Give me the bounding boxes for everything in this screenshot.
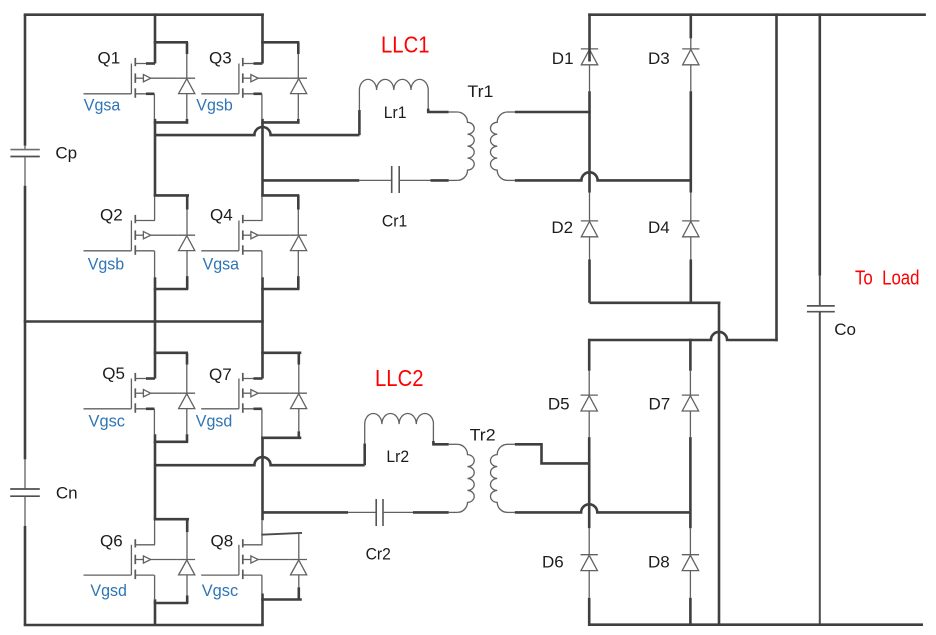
svg-text:Tr1: Tr1 [467, 82, 493, 101]
svg-text:D1: D1 [552, 49, 574, 68]
svg-text:Cr2: Cr2 [366, 545, 391, 564]
svg-text:Vgsb: Vgsb [88, 255, 125, 274]
svg-text:D2: D2 [551, 218, 573, 237]
svg-text:D7: D7 [649, 395, 671, 414]
svg-text:Cn: Cn [56, 484, 78, 503]
svg-text:Vgsc: Vgsc [202, 581, 239, 600]
svg-text:Vgsd: Vgsd [90, 581, 127, 600]
svg-text:To Load: To Load [855, 268, 920, 290]
svg-text:Q3: Q3 [209, 48, 232, 67]
svg-text:D5: D5 [548, 395, 570, 414]
svg-text:Tr2: Tr2 [470, 426, 496, 445]
svg-text:Q6: Q6 [100, 532, 123, 551]
svg-text:LLC1: LLC1 [381, 32, 430, 58]
svg-text:D4: D4 [648, 218, 670, 237]
svg-text:Lr1: Lr1 [384, 103, 407, 122]
svg-text:Q8: Q8 [211, 532, 234, 551]
svg-text:Vgsc: Vgsc [89, 411, 126, 430]
svg-text:Lr2: Lr2 [386, 447, 409, 466]
svg-text:Vgsa: Vgsa [84, 95, 121, 114]
svg-text:Q1: Q1 [98, 48, 121, 67]
svg-text:Vgsb: Vgsb [196, 95, 233, 114]
svg-text:Cr1: Cr1 [382, 212, 407, 231]
svg-text:D8: D8 [648, 553, 670, 572]
svg-text:Q4: Q4 [210, 205, 233, 224]
svg-text:LLC2: LLC2 [375, 365, 424, 391]
svg-text:Co: Co [834, 320, 856, 339]
svg-text:Q5: Q5 [102, 364, 125, 383]
svg-text:Vgsa: Vgsa [203, 255, 240, 274]
svg-text:D3: D3 [648, 49, 670, 68]
svg-text:D6: D6 [542, 553, 564, 572]
svg-text:Q7: Q7 [209, 365, 232, 384]
svg-text:Vgsd: Vgsd [196, 411, 233, 430]
svg-text:Q2: Q2 [100, 205, 123, 224]
svg-text:Cp: Cp [55, 143, 77, 162]
